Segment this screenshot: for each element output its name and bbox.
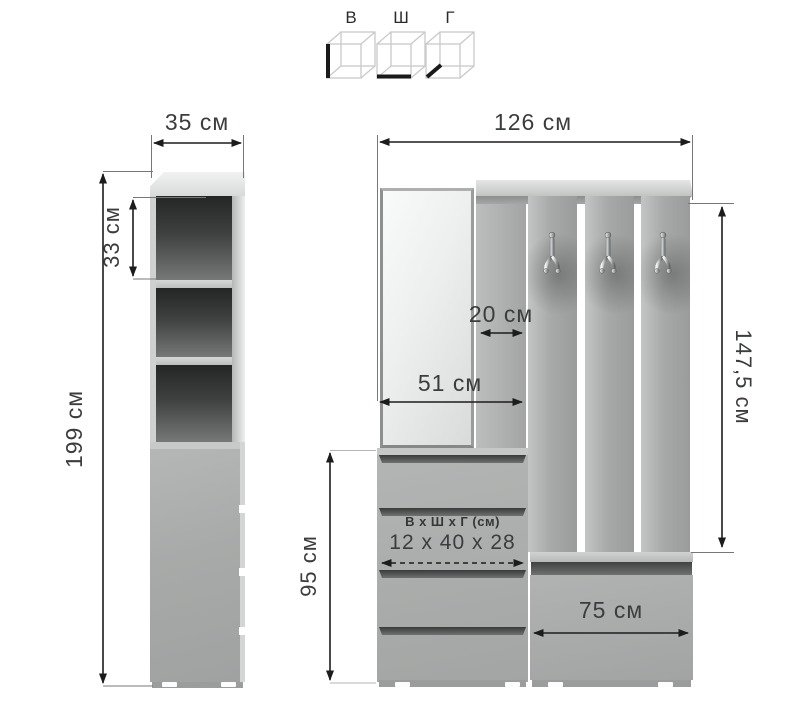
dim-total-width: 126 см: [453, 110, 613, 134]
furniture-dimension-diagram: В Ш Г: [0, 0, 800, 702]
dim-drawer-section-height: 95 см: [297, 516, 321, 616]
dim-mirror-width: 51 см: [390, 371, 510, 395]
dim-left-width: 35 см: [147, 110, 247, 134]
dimension-lines: [0, 0, 800, 702]
dim-hook-section-height: 147,5 см: [731, 317, 755, 437]
dim-bench-width: 75 см: [551, 598, 671, 622]
dim-shelf-height: 33 см: [100, 192, 124, 282]
dim-left-height: 199 см: [62, 379, 86, 479]
dim-side-depth: 20 см: [441, 302, 561, 326]
